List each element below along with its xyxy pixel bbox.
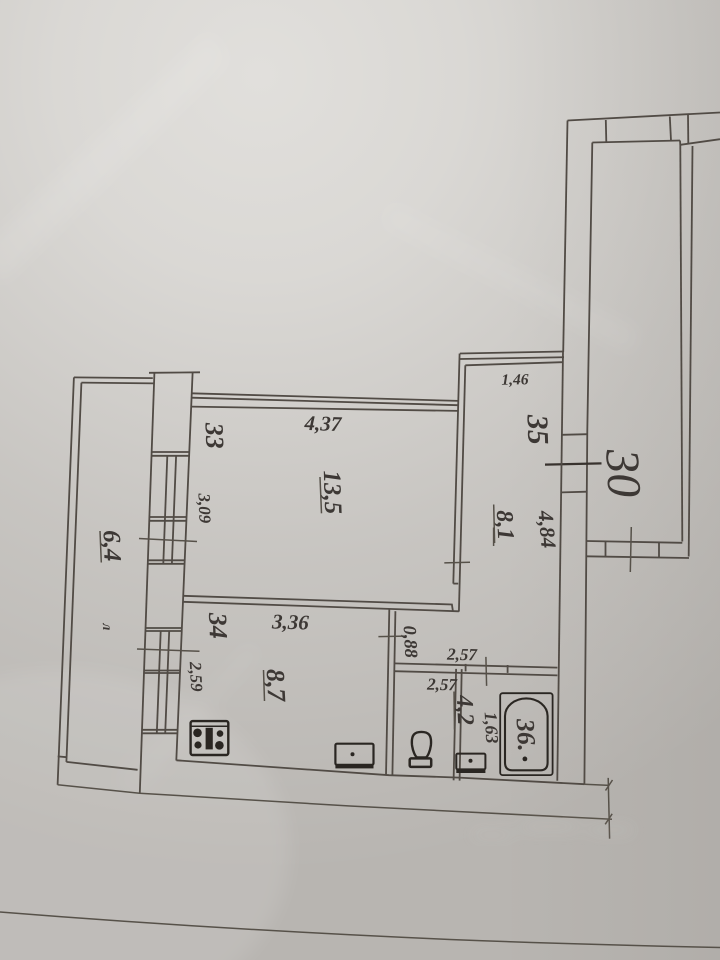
svg-text:35: 35 [520, 413, 554, 445]
svg-text:2,59: 2,59 [186, 660, 207, 692]
svg-text:4,37: 4,37 [303, 411, 343, 436]
svg-text:30: 30 [595, 447, 650, 499]
svg-text:33: 33 [200, 421, 230, 449]
svg-text:8,7: 8,7 [261, 668, 292, 703]
svg-text:0,88: 0,88 [399, 625, 421, 658]
svg-text:3,36: 3,36 [271, 609, 310, 634]
svg-text:4,84: 4,84 [533, 509, 560, 550]
svg-text:1,63: 1,63 [481, 711, 503, 744]
svg-text:2,57: 2,57 [446, 645, 479, 665]
svg-text:1,46: 1,46 [501, 371, 529, 388]
svg-text:л: л [99, 622, 114, 631]
svg-text:3,09: 3,09 [194, 492, 214, 524]
svg-text:36.: 36. [511, 717, 542, 752]
svg-text:34: 34 [203, 611, 233, 639]
svg-text:2,57: 2,57 [426, 675, 459, 695]
